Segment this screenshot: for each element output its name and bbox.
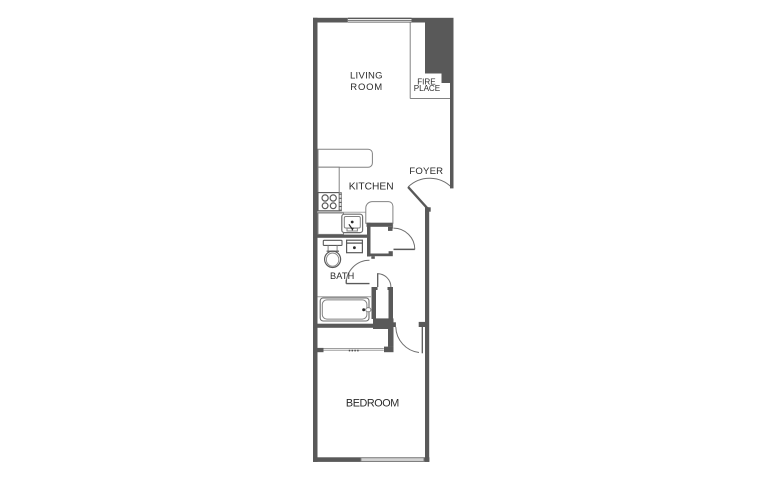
svg-text:BATH: BATH	[330, 271, 354, 281]
svg-text:BEDROOM: BEDROOM	[346, 397, 399, 409]
svg-text:PLACE: PLACE	[414, 84, 441, 93]
svg-text:FOYER: FOYER	[409, 166, 443, 177]
svg-text:ROOM: ROOM	[350, 82, 382, 93]
svg-text:LIVING: LIVING	[350, 71, 383, 82]
svg-text:KITCHEN: KITCHEN	[349, 182, 394, 193]
